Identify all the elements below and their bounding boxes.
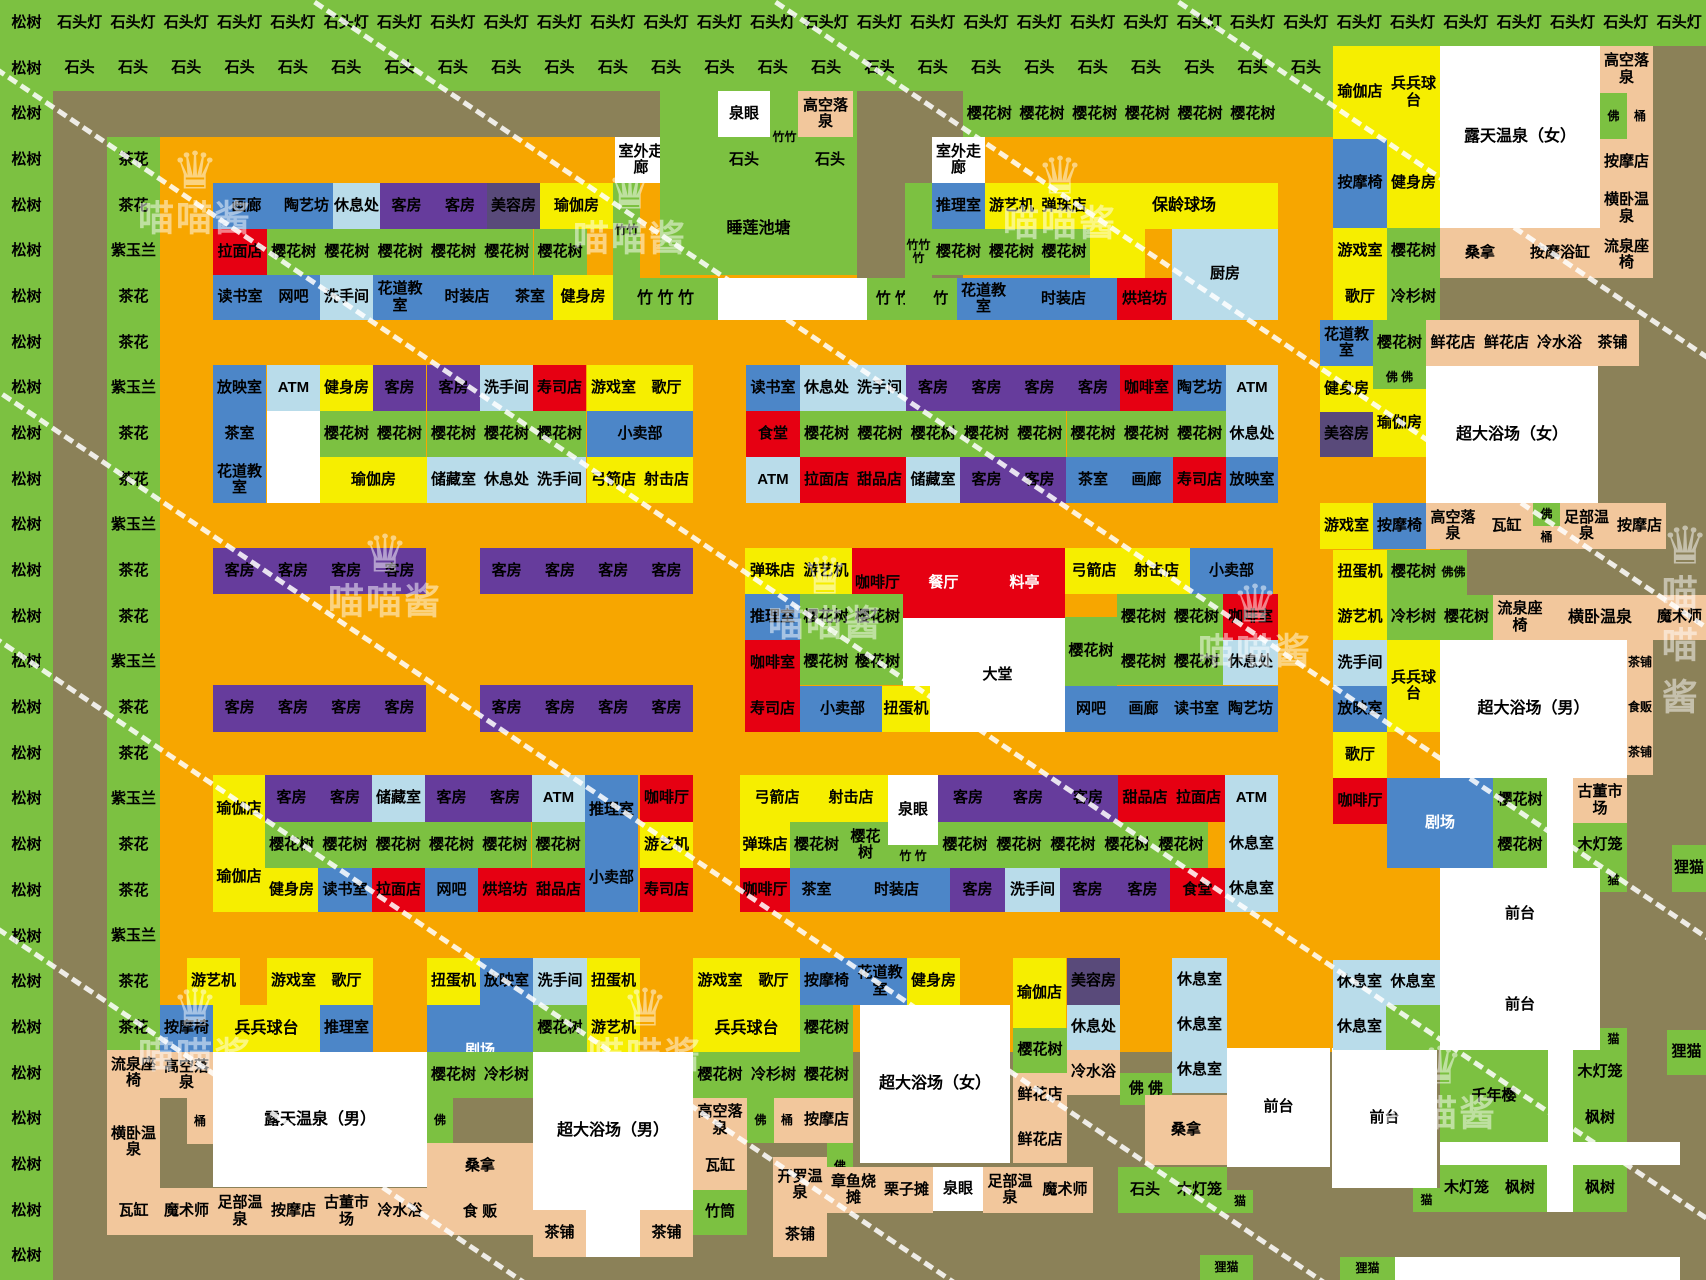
map-tile[interactable]: 休息室: [1333, 1005, 1386, 1050]
map-tile[interactable]: 石头: [480, 46, 533, 91]
map-tile[interactable]: 储藏室: [372, 775, 425, 822]
map-tile[interactable]: 樱花树: [1387, 550, 1440, 595]
map-tile[interactable]: 瓦缸: [693, 1143, 747, 1190]
map-tile[interactable]: 松树: [0, 868, 53, 914]
map-tile[interactable]: ATM: [267, 365, 320, 411]
map-tile[interactable]: 按摩店: [267, 1188, 320, 1235]
map-tile[interactable]: 栗子摊: [880, 1167, 933, 1213]
map-tile[interactable]: 樱花树: [1038, 229, 1090, 275]
map-tile[interactable]: 石头: [746, 46, 799, 91]
map-tile[interactable]: 读书室: [1170, 686, 1223, 732]
map-tile[interactable]: 客房: [425, 775, 478, 822]
map-tile[interactable]: 石头灯: [1439, 0, 1492, 46]
map-tile[interactable]: 桑拿: [427, 1143, 533, 1189]
map-tile[interactable]: 茶花: [107, 137, 160, 183]
map-tile[interactable]: 小卖部: [585, 845, 638, 912]
map-tile[interactable]: 石头灯: [1279, 0, 1332, 46]
map-tile[interactable]: 樱花树: [532, 822, 585, 868]
walkway-cell[interactable]: [1440, 1142, 1627, 1165]
map-tile[interactable]: 石头: [1279, 46, 1332, 91]
map-tile[interactable]: 樱花树: [1065, 617, 1117, 686]
map-tile[interactable]: 客房: [320, 685, 373, 732]
map-tile[interactable]: 游艺机: [985, 183, 1038, 229]
map-tile[interactable]: 高空落泉: [1426, 503, 1480, 549]
map-tile[interactable]: 石头灯: [1493, 0, 1546, 46]
map-tile[interactable]: 樱花树: [963, 91, 1016, 137]
map-tile[interactable]: 客房: [1013, 457, 1066, 503]
map-tile[interactable]: 洗手间: [853, 365, 906, 411]
map-tile[interactable]: 客房: [427, 365, 480, 411]
map-tile[interactable]: 保龄球场: [1090, 183, 1278, 229]
map-tile[interactable]: 石头: [693, 46, 746, 91]
map-tile[interactable]: 石头灯: [799, 0, 852, 46]
map-tile[interactable]: 游艺机: [587, 1005, 640, 1052]
map-tile[interactable]: 咖啡室: [1223, 594, 1278, 640]
map-tile[interactable]: 石头灯: [1653, 0, 1706, 46]
map-tile[interactable]: 高空落泉: [1600, 46, 1653, 93]
map-tile[interactable]: 流泉座椅: [1493, 595, 1547, 640]
map-tile[interactable]: 桶: [1533, 526, 1560, 549]
map-tile[interactable]: 冷杉树: [1387, 274, 1440, 320]
map-tile[interactable]: 松树: [0, 183, 53, 229]
map-tile[interactable]: 横卧温泉: [107, 1096, 160, 1188]
map-tile[interactable]: 寿司店: [533, 365, 586, 411]
map-tile[interactable]: 石头: [1118, 1167, 1172, 1213]
map-tile[interactable]: 健身房: [1387, 139, 1440, 228]
walkway-cell[interactable]: [1547, 1165, 1573, 1212]
map-tile[interactable]: 室外走廊: [932, 137, 985, 183]
map-tile[interactable]: 樱花树: [960, 411, 1013, 457]
map-tile[interactable]: 冷杉树: [1387, 595, 1440, 640]
map-tile[interactable]: 网吧: [1065, 686, 1117, 732]
map-tile[interactable]: 休息室: [1333, 960, 1386, 1005]
map-tile[interactable]: 紫玉兰: [107, 639, 160, 685]
map-tile[interactable]: 客房: [266, 685, 319, 732]
map-tile[interactable]: 花道教室: [853, 958, 907, 1005]
map-tile[interactable]: 客房: [1066, 365, 1120, 411]
map-tile[interactable]: 石头灯: [1013, 0, 1066, 46]
map-tile[interactable]: 樱花树: [1121, 91, 1174, 137]
map-tile[interactable]: 休息处: [480, 457, 533, 503]
map-tile[interactable]: 瑜伽房: [320, 457, 427, 503]
map-tile[interactable]: 石头: [906, 46, 959, 91]
map-tile[interactable]: 陶艺坊: [1173, 365, 1226, 411]
map-tile[interactable]: 松树: [0, 137, 53, 183]
map-tile[interactable]: 松树: [0, 594, 53, 640]
map-tile[interactable]: 佛: [1533, 503, 1560, 526]
map-tile[interactable]: 瓦缸: [107, 1188, 160, 1235]
map-tile[interactable]: 时装店: [843, 868, 950, 912]
map-tile[interactable]: 休息室: [1172, 1048, 1227, 1093]
map-tile[interactable]: 兵兵球台: [1387, 46, 1440, 139]
map-tile[interactable]: 石头灯: [1226, 0, 1279, 46]
map-tile[interactable]: 樱花树: [480, 411, 533, 457]
map-tile[interactable]: 歌厅: [320, 958, 373, 1005]
map-tile[interactable]: 料亭: [984, 548, 1065, 618]
map-tile[interactable]: 弹珠店: [740, 822, 790, 868]
map-tile[interactable]: 樱花树: [1440, 595, 1493, 640]
map-tile[interactable]: 猫: [1600, 1028, 1627, 1050]
map-tile[interactable]: 流泉座椅: [107, 1050, 160, 1096]
map-tile[interactable]: 游艺机: [640, 822, 693, 868]
map-tile[interactable]: 竹竹竹: [905, 183, 932, 320]
map-tile[interactable]: 石头: [266, 46, 319, 91]
map-tile[interactable]: 扭蛋机: [1333, 550, 1387, 595]
map-tile[interactable]: 时装店: [1010, 278, 1117, 320]
map-tile[interactable]: 魔术师: [1037, 1167, 1093, 1213]
map-tile[interactable]: 松树: [0, 685, 53, 731]
map-tile[interactable]: 游戏室: [1320, 503, 1373, 549]
map-tile[interactable]: 客房: [640, 685, 693, 732]
map-tile[interactable]: 松树: [0, 0, 53, 46]
map-tile[interactable]: 游戏室: [267, 958, 320, 1005]
map-tile[interactable]: 樱花树: [907, 411, 960, 457]
map-tile[interactable]: 石头: [853, 46, 906, 91]
map-tile[interactable]: 茶花: [107, 731, 160, 777]
map-tile[interactable]: 樱花树: [800, 411, 853, 457]
map-tile[interactable]: 休息室: [1386, 960, 1440, 1005]
map-tile[interactable]: 木灯笼: [1573, 1050, 1627, 1095]
map-tile[interactable]: 足部温泉: [213, 1188, 267, 1235]
map-tile[interactable]: 兵兵球台: [213, 1005, 320, 1052]
map-tile[interactable]: 客房: [533, 548, 586, 594]
map-tile[interactable]: 客房: [1013, 365, 1066, 411]
map-tile[interactable]: 客房: [950, 868, 1005, 912]
map-tile[interactable]: 石头灯: [160, 0, 213, 46]
map-tile[interactable]: 石头灯: [1386, 0, 1439, 46]
map-tile[interactable]: 客房: [1060, 868, 1115, 912]
map-tile[interactable]: 樱花树: [985, 229, 1038, 275]
map-tile[interactable]: 竹竹: [613, 183, 640, 278]
map-tile[interactable]: 开罗温泉: [773, 1157, 827, 1213]
map-tile[interactable]: 足部温泉: [1560, 503, 1613, 549]
map-tile[interactable]: 弹珠店: [745, 548, 800, 594]
map-tile[interactable]: 松树: [0, 457, 53, 503]
map-tile[interactable]: 画廊: [213, 183, 280, 229]
map-tile[interactable]: 茶室: [790, 868, 843, 912]
map-tile[interactable]: 樱花树: [800, 640, 852, 685]
map-tile[interactable]: 客房: [1115, 868, 1170, 912]
map-tile[interactable]: 茶花: [107, 1005, 160, 1051]
map-tile[interactable]: 猫: [1600, 868, 1627, 892]
map-tile[interactable]: 石头灯: [426, 0, 479, 46]
map-tile[interactable]: 美容房: [1320, 412, 1373, 457]
map-tile[interactable]: 按摩椅: [800, 958, 853, 1005]
map-tile[interactable]: 樱花树: [1068, 91, 1121, 137]
map-tile[interactable]: 餐厅: [903, 548, 984, 618]
map-tile[interactable]: 拉面店: [1172, 775, 1225, 822]
map-tile[interactable]: 歌厅: [747, 958, 800, 1005]
map-tile[interactable]: 储藏室: [427, 457, 480, 503]
map-tile[interactable]: 松树: [0, 777, 53, 823]
map-tile[interactable]: 睡莲池塘: [660, 183, 857, 275]
map-tile[interactable]: 魔术师: [1653, 595, 1706, 640]
map-tile[interactable]: 游戏室: [1333, 228, 1387, 274]
map-tile[interactable]: 瑜伽店: [213, 775, 265, 843]
map-tile[interactable]: 冷杉树: [747, 1052, 800, 1098]
map-tile[interactable]: 石头灯: [213, 0, 266, 46]
map-tile[interactable]: 冷水浴: [1533, 320, 1586, 366]
map-tile[interactable]: 高空落泉: [798, 91, 853, 137]
map-tile[interactable]: 茶铺: [533, 1210, 586, 1257]
map-tile[interactable]: 健身房: [907, 958, 960, 1005]
map-tile[interactable]: 食堂: [746, 411, 800, 457]
map-tile[interactable]: 石头: [799, 46, 852, 91]
map-tile[interactable]: 石头灯: [746, 0, 799, 46]
map-tile[interactable]: 鲜花店: [1013, 1073, 1067, 1118]
map-tile[interactable]: 佛佛: [1440, 550, 1467, 595]
map-tile[interactable]: 松树: [0, 1096, 53, 1142]
map-tile[interactable]: 樱花树: [373, 411, 426, 457]
map-tile[interactable]: 泉眼: [718, 91, 770, 137]
map-tile[interactable]: 桶: [1627, 93, 1653, 139]
map-tile[interactable]: 冷水浴: [373, 1188, 427, 1235]
map-tile[interactable]: 休息室: [1225, 822, 1278, 867]
map-tile[interactable]: 石头灯: [906, 0, 959, 46]
map-tile[interactable]: 桶: [774, 1098, 800, 1143]
map-tile[interactable]: 客房: [998, 775, 1058, 822]
map-tile[interactable]: 健身房: [553, 275, 613, 320]
map-tile[interactable]: 樱花树: [320, 411, 373, 457]
map-tile[interactable]: 松树: [0, 548, 53, 594]
map-tile[interactable]: 瑜伽店: [1013, 958, 1066, 1028]
map-tile[interactable]: 茶花: [107, 183, 160, 229]
map-tile[interactable]: 陶艺坊: [280, 183, 333, 229]
map-tile[interactable]: 甜品店: [532, 868, 585, 912]
map-tile[interactable]: 食堂: [1170, 868, 1225, 912]
map-tile[interactable]: 樱花树: [1120, 411, 1173, 457]
map-tile[interactable]: 樱花树: [267, 229, 320, 275]
map-tile[interactable]: 露天温泉（男）: [213, 1052, 427, 1187]
map-tile[interactable]: 石头灯: [480, 0, 533, 46]
map-tile[interactable]: 石头: [1066, 46, 1119, 91]
map-tile[interactable]: 花道教室: [213, 457, 266, 503]
map-tile[interactable]: 健身房: [1320, 366, 1373, 412]
map-tile[interactable]: 放映室: [1333, 686, 1387, 732]
map-tile[interactable]: 瑜伽房: [1373, 389, 1426, 457]
map-tile[interactable]: 石头: [803, 137, 857, 183]
map-tile[interactable]: 石头灯: [1173, 0, 1226, 46]
map-tile[interactable]: 石头灯: [693, 0, 746, 46]
map-tile[interactable]: 客房: [587, 685, 640, 732]
map-tile[interactable]: 花道教室: [957, 278, 1010, 320]
map-tile[interactable]: 松树: [0, 1188, 53, 1234]
map-tile[interactable]: 洗手间: [320, 275, 373, 320]
map-tile[interactable]: 客房: [960, 365, 1013, 411]
map-tile[interactable]: 樱花树: [533, 411, 586, 457]
map-tile[interactable]: 茶花: [107, 457, 160, 503]
map-tile[interactable]: 石头: [1119, 46, 1172, 91]
map-tile[interactable]: 推理室: [585, 775, 638, 845]
map-tile[interactable]: 美容房: [487, 183, 540, 229]
map-tile[interactable]: 佛: [1600, 93, 1627, 139]
map-tile[interactable]: 紫玉兰: [107, 365, 160, 411]
map-tile[interactable]: 按摩椅: [160, 1005, 213, 1052]
map-tile[interactable]: 樱花树: [800, 594, 852, 640]
map-tile[interactable]: 石头: [959, 46, 1012, 91]
map-tile[interactable]: 客房: [480, 685, 533, 732]
map-tile[interactable]: 超大浴场（女）: [860, 1005, 1010, 1163]
map-tile[interactable]: 推理室: [932, 183, 985, 229]
map-tile[interactable]: 石头灯: [1066, 0, 1119, 46]
map-tile[interactable]: 扭蛋机: [882, 686, 930, 732]
map-tile[interactable]: 竹 竹: [888, 845, 938, 868]
map-tile[interactable]: 狸猫: [1200, 1255, 1253, 1280]
map-tile[interactable]: 樱花树: [1100, 822, 1154, 868]
map-tile[interactable]: 紫玉兰: [107, 913, 160, 959]
map-tile[interactable]: 枫树: [1573, 1165, 1627, 1212]
map-tile[interactable]: 樱花树: [1154, 822, 1208, 868]
map-tile[interactable]: 瑜伽房: [540, 183, 613, 229]
map-tile[interactable]: 按摩椅: [1333, 139, 1387, 228]
map-tile[interactable]: 魔术师: [160, 1188, 213, 1235]
map-tile[interactable]: 樱花树: [480, 229, 533, 275]
map-tile[interactable]: 樱花树: [932, 229, 985, 275]
map-tile[interactable]: 游艺机: [800, 548, 852, 594]
walkway-cell[interactable]: [1547, 778, 1573, 868]
map-tile[interactable]: 茶铺: [773, 1213, 827, 1257]
map-tile[interactable]: 美容房: [1067, 958, 1120, 1005]
map-tile[interactable]: 读书室: [318, 868, 372, 912]
map-tile[interactable]: 游艺机: [1333, 595, 1387, 640]
map-tile[interactable]: 樱花树: [533, 1005, 587, 1052]
map-tile[interactable]: 佛: [427, 1098, 453, 1143]
map-tile[interactable]: 茶铺: [640, 1210, 693, 1257]
map-tile[interactable]: 樱花树: [1387, 228, 1440, 274]
map-tile[interactable]: 松树: [0, 1051, 53, 1097]
map-tile[interactable]: 休息处: [1067, 1005, 1120, 1050]
map-tile[interactable]: 茶铺: [1627, 730, 1653, 775]
map-tile[interactable]: 狸猫: [1672, 845, 1706, 892]
map-tile[interactable]: 竹 竹 竹: [613, 278, 718, 320]
map-tile[interactable]: 大堂: [930, 618, 1065, 732]
map-tile[interactable]: 兵兵球台: [693, 1005, 800, 1052]
map-tile[interactable]: 画廊: [1120, 457, 1173, 503]
map-tile[interactable]: 泉眼: [888, 775, 938, 845]
map-tile[interactable]: 休息室: [1172, 1003, 1227, 1048]
map-tile[interactable]: 松树: [0, 822, 53, 868]
map-tile[interactable]: 游戏室: [693, 958, 747, 1005]
map-tile[interactable]: 石头: [1173, 46, 1226, 91]
map-tile[interactable]: 寿司店: [640, 868, 693, 912]
map-tile[interactable]: 樱花树: [800, 1052, 853, 1098]
map-tile[interactable]: 石头灯: [853, 0, 906, 46]
map-tile[interactable]: 樱花树: [852, 640, 903, 685]
map-tile[interactable]: 时装店: [427, 275, 507, 320]
map-tile[interactable]: 石头: [160, 46, 213, 91]
map-tile[interactable]: 扭蛋机: [587, 958, 640, 1005]
map-tile[interactable]: 射击店: [640, 457, 693, 503]
map-tile[interactable]: 洗手间: [1005, 868, 1060, 912]
map-tile[interactable]: 客房: [433, 183, 487, 229]
map-tile[interactable]: 休息室: [1225, 867, 1278, 912]
map-tile[interactable]: 樱花树: [1373, 320, 1426, 366]
map-tile[interactable]: 茶花: [107, 959, 160, 1005]
map-tile[interactable]: 石头灯: [1333, 0, 1386, 46]
map-tile[interactable]: 高空落泉: [693, 1098, 747, 1143]
map-tile[interactable]: 石头: [106, 46, 159, 91]
map-tile[interactable]: 按摩店: [1600, 139, 1653, 185]
map-tile[interactable]: 竹竹: [771, 91, 798, 183]
map-tile[interactable]: 客房: [265, 775, 318, 822]
map-tile[interactable]: 休息室: [1172, 958, 1227, 1003]
map-tile[interactable]: 石头: [320, 46, 373, 91]
map-tile[interactable]: 读书室: [746, 365, 800, 411]
map-tile[interactable]: ATM: [746, 457, 800, 503]
map-tile[interactable]: 前台: [1332, 1048, 1437, 1188]
map-tile[interactable]: 超大浴场（女）: [1426, 366, 1598, 503]
map-tile[interactable]: 烘培坊: [478, 868, 532, 912]
map-tile[interactable]: 弓箭店: [1065, 548, 1123, 594]
map-tile[interactable]: 紫玉兰: [107, 228, 160, 274]
map-tile[interactable]: 樱花树: [427, 229, 480, 275]
map-tile[interactable]: 松树: [0, 365, 53, 411]
walkway-cell[interactable]: [1395, 1257, 1680, 1280]
map-tile[interactable]: 客房: [533, 685, 586, 732]
map-tile[interactable]: 茶铺: [1627, 640, 1653, 685]
map-tile[interactable]: 放映室: [1226, 457, 1278, 503]
map-tile[interactable]: 佛 佛: [1373, 366, 1426, 389]
map-tile[interactable]: 茶室: [507, 275, 553, 320]
map-tile[interactable]: 松树: [0, 411, 53, 457]
map-tile[interactable]: 推理室: [320, 1005, 373, 1052]
map-tile[interactable]: 樱花树: [374, 229, 427, 275]
map-tile[interactable]: 客房: [373, 685, 426, 732]
map-tile[interactable]: 客房: [478, 775, 532, 822]
map-tile[interactable]: 石头灯: [1546, 0, 1599, 46]
map-tile[interactable]: 烘培坊: [1117, 278, 1172, 320]
map-tile[interactable]: 前台: [1440, 868, 1600, 960]
map-tile[interactable]: 客房: [938, 775, 998, 822]
map-tile[interactable]: 超大浴场（男）: [1440, 640, 1627, 778]
map-tile[interactable]: 陶艺坊: [1223, 686, 1278, 732]
map-tile[interactable]: 樱花树: [318, 822, 371, 868]
map-tile[interactable]: 枫树: [1493, 1165, 1547, 1212]
map-tile[interactable]: 客房: [318, 775, 372, 822]
map-tile[interactable]: 小卖部: [1190, 548, 1273, 594]
map-tile[interactable]: 樱花树: [790, 822, 843, 868]
map-tile[interactable]: 甜品店: [1118, 775, 1172, 822]
map-tile[interactable]: 休息处: [1223, 640, 1278, 685]
map-tile[interactable]: 竹筒: [693, 1190, 747, 1235]
map-tile[interactable]: 松树: [0, 46, 53, 92]
map-tile[interactable]: 狸猫: [1340, 1257, 1395, 1280]
map-tile[interactable]: 客房: [266, 548, 319, 594]
map-tile[interactable]: 石头灯: [373, 0, 426, 46]
map-tile[interactable]: 樱花树: [1493, 823, 1547, 868]
map-tile[interactable]: 樱花树: [843, 822, 888, 868]
map-tile[interactable]: 樱花树: [425, 822, 478, 868]
map-tile[interactable]: 横卧温泉: [1600, 185, 1653, 232]
map-tile[interactable]: 小卖部: [587, 411, 693, 457]
map-tile[interactable]: 桑拿: [1145, 1095, 1227, 1165]
map-tile[interactable]: 流泉座椅: [1600, 232, 1653, 278]
map-tile[interactable]: 歌厅: [640, 365, 693, 411]
map-tile[interactable]: 弹珠店: [1038, 183, 1090, 229]
map-tile[interactable]: 松树: [0, 1142, 53, 1188]
map-tile[interactable]: 樱花树: [992, 822, 1046, 868]
map-tile[interactable]: 茶室: [1066, 457, 1120, 503]
map-tile[interactable]: 拉面店: [372, 868, 425, 912]
map-tile[interactable]: 射击店: [1123, 548, 1190, 594]
map-tile[interactable]: 樱花树: [1013, 1028, 1067, 1073]
map-tile[interactable]: 石头灯: [1119, 0, 1172, 46]
map-tile[interactable]: 按摩浴缸: [1520, 228, 1600, 278]
map-tile[interactable]: 前台: [1440, 960, 1600, 1050]
map-tile[interactable]: 小卖部: [800, 686, 885, 732]
map-tile[interactable]: 樱花树: [1067, 411, 1120, 457]
map-tile[interactable]: 石头灯: [586, 0, 639, 46]
